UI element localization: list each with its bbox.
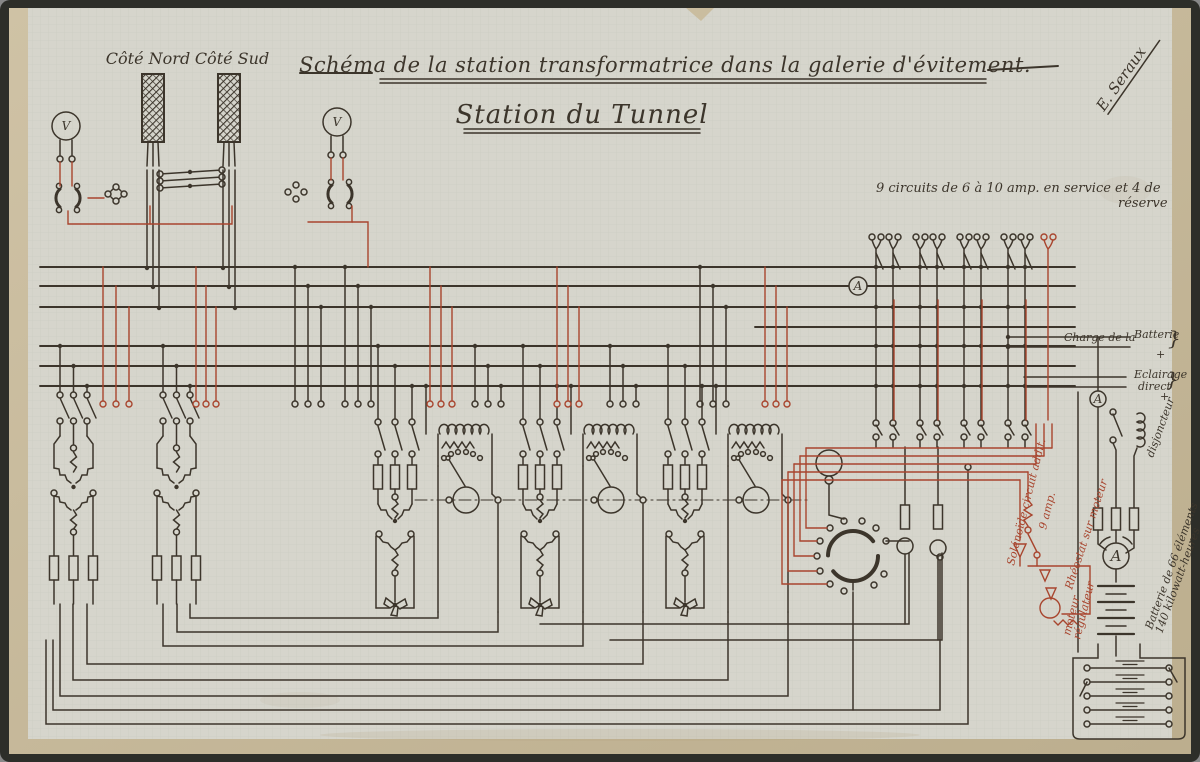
framed-schematic-photo: Schéma de la station transformatrice dan… [0,0,1200,762]
charge-label-1: Charge de la [1064,331,1136,344]
ammeter-right-letter: A [1093,392,1103,406]
cable-south-icon [218,74,240,142]
circuits-note-line2: réserve [1118,196,1168,211]
voltmeter-left-letter: V [62,119,72,133]
cable-north-icon [142,74,164,142]
subtitle-text: Station du Tunnel [455,100,708,130]
cable-north-label: Côté Nord [106,49,190,68]
eclairage-brace: } [1166,367,1179,391]
ammeter-bus-letter: A [853,279,863,293]
charge-plus: + [1156,348,1165,361]
title-text: Schéma de la station transformatrice dan… [299,53,1031,77]
schematic-drawing: Schéma de la station transformatrice dan… [0,0,1200,762]
charge-brace: } [1168,326,1181,350]
ammeter-battery-letter: A [1109,547,1122,565]
voltmeter-right-letter: V [333,115,343,129]
cable-south-label: Côté Sud [195,49,269,68]
circuits-note-line1: 9 circuits de 6 à 10 amp. en service et … [876,181,1161,196]
